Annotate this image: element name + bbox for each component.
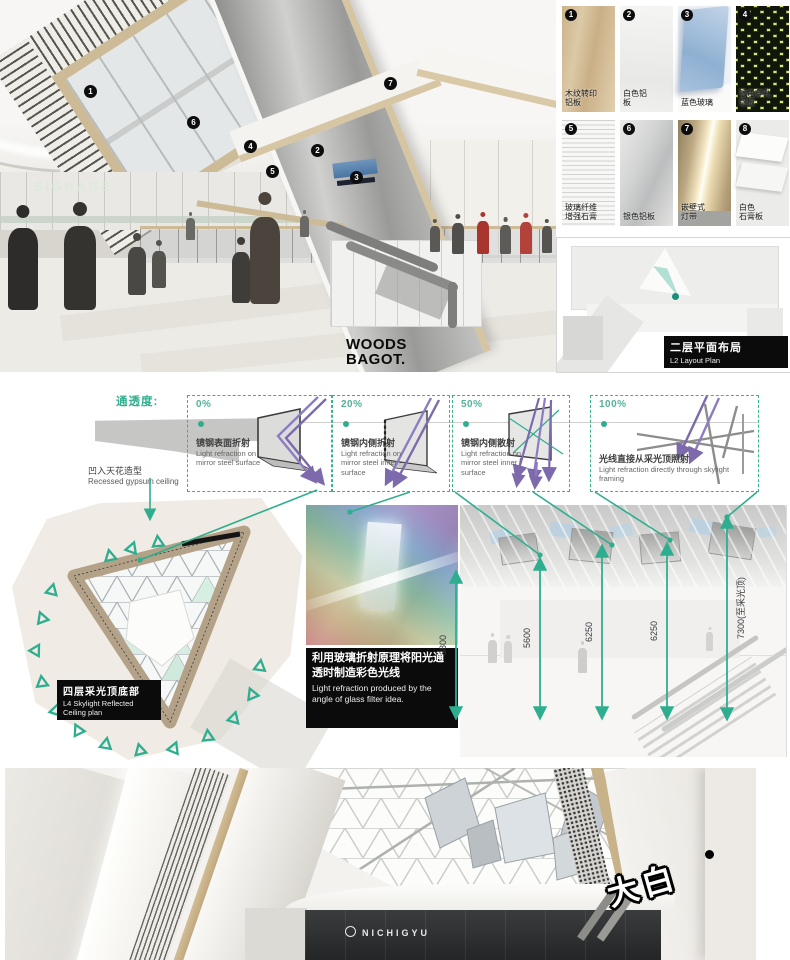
l2-layout-plan: 二层平面布局 L2 Layout Plan <box>556 237 790 373</box>
material-swatch-3: 3蓝色玻璃 <box>678 6 731 112</box>
plan-block-dark <box>563 316 603 360</box>
person-silhouette <box>452 214 464 254</box>
materials-palette: 1木纹转印 铝板 2白色铝 板 3蓝色玻璃 4银色穿孔 铝板 5玻璃纤维 增强石… <box>562 6 789 232</box>
signage-store-text: SIGNAGE <box>34 180 113 194</box>
material-swatch-4: 4银色穿孔 铝板 <box>736 6 789 112</box>
dabai-dot <box>705 850 714 859</box>
material-label: 银色穿孔 铝板 <box>739 89 788 108</box>
material-number: 2 <box>623 9 635 21</box>
view-point-dot <box>672 293 679 300</box>
material-label: 银色铝板 <box>623 212 672 222</box>
person-silhouette <box>250 192 280 304</box>
material-number: 6 <box>623 123 635 135</box>
material-callout-3: 3 <box>350 171 363 184</box>
blue-glass-swatch <box>678 6 731 112</box>
material-label: 嵌壁式 灯带 <box>681 203 730 222</box>
silver-aluminum-swatch <box>620 120 673 226</box>
material-number: 4 <box>739 9 751 21</box>
person-silhouette <box>152 240 166 288</box>
l2-interior-rendering: 1 6 4 2 5 3 7 SIGNAGE WOODS BAGOT. <box>0 0 556 372</box>
material-swatch-8: 8白色 石膏板 <box>736 120 789 226</box>
material-label: 玻璃纤维 增强石膏 <box>565 203 614 222</box>
person-silhouette <box>500 217 511 254</box>
material-number: 5 <box>565 123 577 135</box>
dimension-7300: 7300(至采光顶) <box>734 568 746 648</box>
material-number: 1 <box>565 9 577 21</box>
l2-plan-label-cn: 二层平面布局 <box>670 339 782 355</box>
material-swatch-5: 5玻璃纤维 增强石膏 <box>562 120 615 226</box>
material-number: 8 <box>739 123 751 135</box>
material-label: 蓝色玻璃 <box>681 98 730 108</box>
material-callout-1: 1 <box>84 85 97 98</box>
escalator-newel <box>448 282 457 328</box>
person-silhouette-red <box>520 213 532 254</box>
material-swatch-7: 7嵌壁式 灯带 <box>678 120 731 226</box>
material-callout-2: 2 <box>311 144 324 157</box>
person-silhouette <box>8 205 38 310</box>
person-silhouette <box>64 202 96 310</box>
l4-atrium-rendering: NICHIGYU 大白 <box>5 768 756 960</box>
dimension-3800: 3800 <box>438 605 450 685</box>
dimension-6250-b: 6250 <box>649 591 661 671</box>
material-label: 白色铝 板 <box>623 89 672 108</box>
material-callout-7: 7 <box>384 77 397 90</box>
material-label: 白色 石膏板 <box>739 203 788 222</box>
dimension-6250-a: 6250 <box>584 592 596 672</box>
skylight-analysis-section: 通透度: 凹入天花造型 Recessed gypsum ceiling 0% 镜… <box>0 380 790 762</box>
store-sign-text: NICHIGYU <box>345 926 430 938</box>
presentation-board: 1 6 4 2 5 3 7 SIGNAGE WOODS BAGOT. 1木纹转印… <box>0 0 790 960</box>
person-silhouette <box>300 210 309 237</box>
material-swatch-2: 2白色铝 板 <box>620 6 673 112</box>
material-label: 木纹转印 铝板 <box>565 89 614 108</box>
material-number: 3 <box>681 9 693 21</box>
l2-plan-label: 二层平面布局 L2 Layout Plan <box>664 336 788 368</box>
logo-line-2: BAGOT. <box>346 353 407 368</box>
person-silhouette <box>542 219 552 253</box>
person-silhouette-red <box>477 212 489 254</box>
person-silhouette <box>430 219 440 252</box>
material-number: 7 <box>681 123 693 135</box>
person-silhouette <box>128 233 146 295</box>
material-callout-6: 6 <box>187 116 200 129</box>
person-silhouette <box>186 212 195 240</box>
material-swatch-1: 1木纹转印 铝板 <box>562 6 615 112</box>
annotation-overlay <box>0 380 790 762</box>
dimension-5600: 5600 <box>522 598 534 678</box>
lower-left-wall <box>245 908 307 960</box>
material-swatch-6: 6银色铝板 <box>620 120 673 226</box>
woods-bagot-logo: WOODS BAGOT. <box>346 338 407 367</box>
material-callout-5: 5 <box>266 165 279 178</box>
person-silhouette <box>232 237 250 303</box>
material-callout-4: 4 <box>244 140 257 153</box>
l2-plan-label-en: L2 Layout Plan <box>670 356 782 365</box>
